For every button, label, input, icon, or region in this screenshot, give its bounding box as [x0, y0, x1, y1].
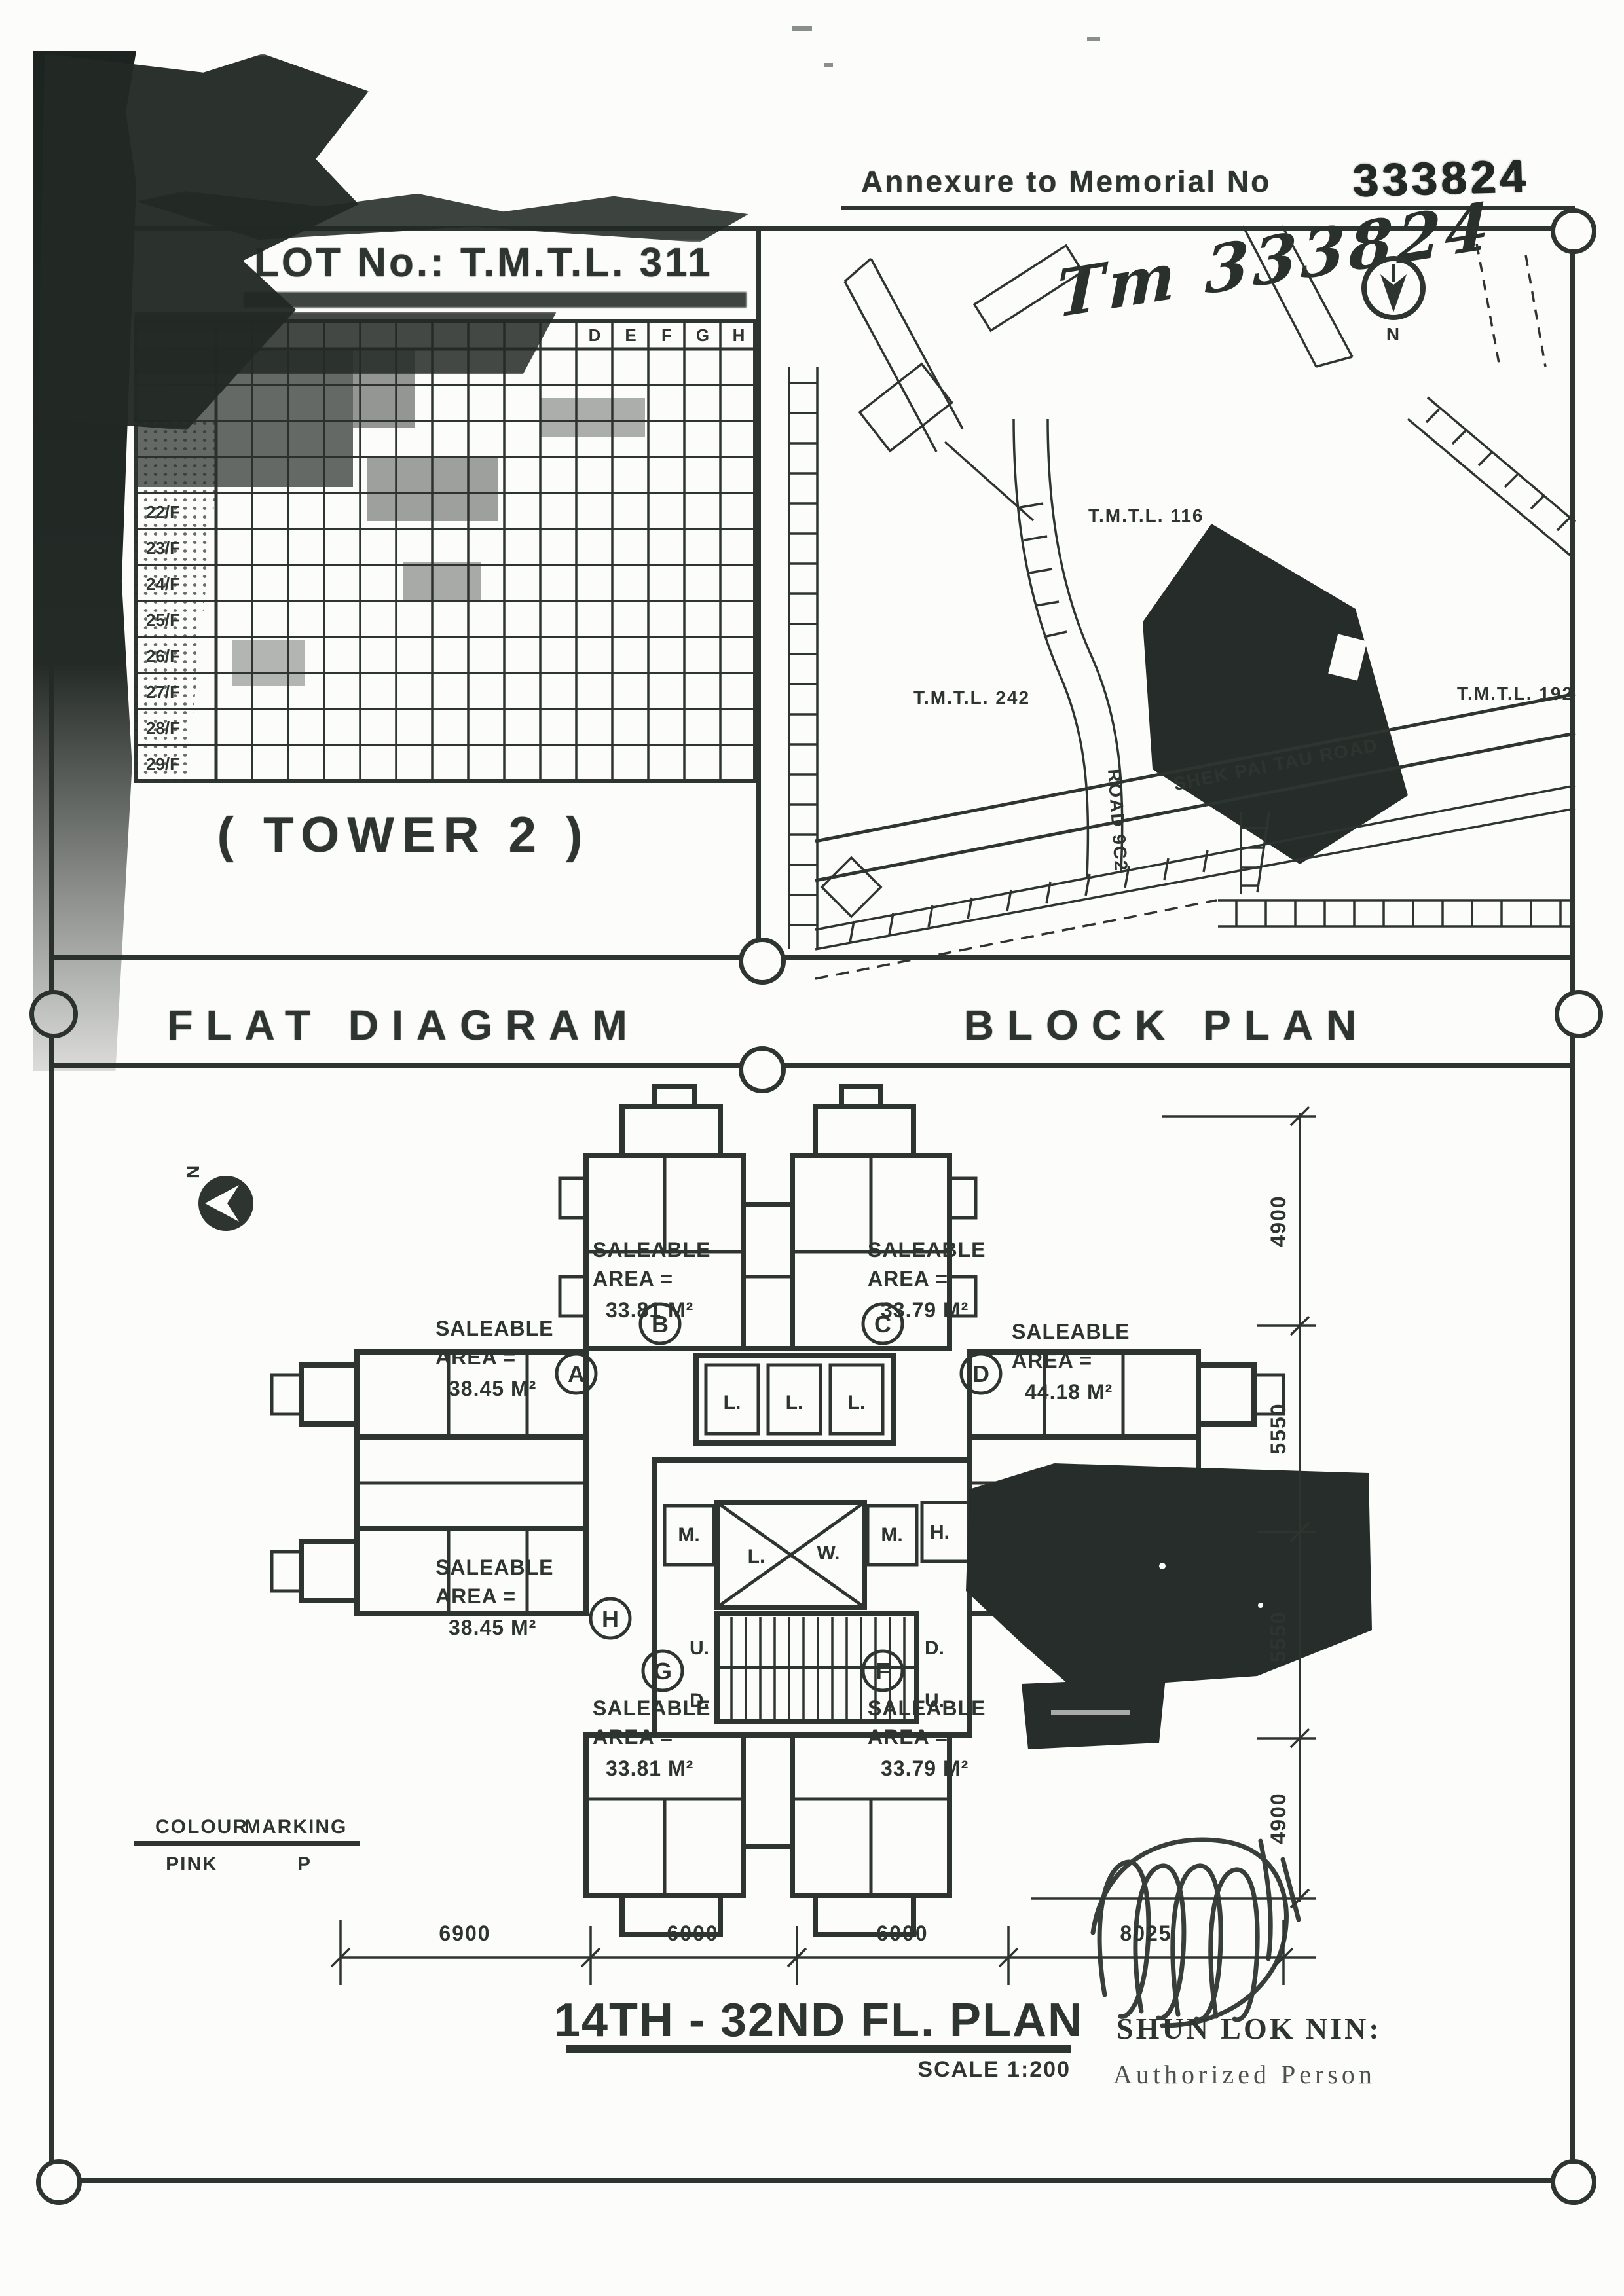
saleable-line: 38.45 M²	[449, 1377, 536, 1400]
legend-p-value: P	[297, 1853, 312, 1875]
saleable-line: SALEABLE	[868, 1696, 986, 1720]
lot-label-192: T.M.T.L. 192	[1457, 683, 1574, 704]
plan-title-block: 14TH - 32ND FL. PLAN SCALE 1:200	[554, 1994, 1083, 2082]
lot-label-242: T.M.T.L. 242	[913, 687, 1030, 708]
meter-room-label: M.	[881, 1524, 902, 1546]
dim-label: 6000	[876, 1922, 928, 1945]
dim-label: 5550	[1266, 1402, 1290, 1454]
saleable-line: 38.45 M²	[449, 1616, 536, 1639]
dim-label: 6000	[667, 1922, 718, 1945]
core: L. L. L. L. W. M. M. H.	[586, 1349, 998, 1735]
north-label: N	[1386, 324, 1401, 344]
saleable-line: AREA =	[435, 1345, 516, 1369]
caption-block-plan: BLOCK PLAN	[758, 982, 1575, 1068]
road-9c2-label: ROAD 9C2	[1104, 768, 1132, 872]
scan-artifact-grid-header	[134, 312, 557, 374]
flat-letter-d: D	[972, 1360, 989, 1387]
road-9c2	[1014, 419, 1122, 877]
subject-lot-311	[1143, 524, 1408, 864]
saleable-area-flat-a: SALEABLE AREA = 38.45 M²	[435, 1317, 553, 1400]
saleable-area-flat-c: SALEABLE AREA = 33.79 M²	[868, 1238, 986, 1322]
dim-label: 4900	[1266, 1195, 1290, 1247]
lot-label-116: T.M.T.L. 116	[1088, 505, 1204, 526]
legend-pink-value: PINK	[166, 1853, 218, 1875]
saleable-line: 33.81 M²	[606, 1757, 693, 1780]
hose-room-label: H.	[930, 1522, 950, 1543]
column-header: D	[589, 325, 601, 345]
saleable-line: 33.79 M²	[881, 1298, 969, 1322]
saleable-line: 44.18 M²	[1025, 1380, 1113, 1404]
saleable-line: AREA =	[435, 1584, 516, 1608]
saleable-line: SALEABLE	[435, 1317, 553, 1340]
flat-diagram-drawing: N	[49, 1068, 1575, 2183]
column-header: H	[733, 325, 745, 345]
stair-down-label: D.	[925, 1637, 944, 1659]
flat-diagram-north-arrow: N	[183, 1164, 253, 1231]
saleable-area-flat-g: SALEABLE AREA = 33.81 M²	[593, 1696, 710, 1780]
tower-label: ( TOWER 2 )	[49, 807, 758, 864]
saleable-line: SALEABLE	[435, 1556, 553, 1579]
map-buildings	[845, 226, 1545, 520]
plan-title: 14TH - 32ND FL. PLAN	[554, 1994, 1083, 2047]
dim-label: 5550	[1266, 1611, 1290, 1662]
lightwell-l-label: L.	[748, 1546, 766, 1567]
flat-letter-g: G	[654, 1658, 672, 1685]
lightwell-w-label: W.	[817, 1542, 840, 1564]
lift-label: L.	[724, 1392, 741, 1413]
map-hatched-band	[1408, 397, 1575, 556]
north-label: N	[183, 1164, 203, 1178]
authorized-person-name: SHUN LOK NIN:	[1116, 2012, 1382, 2045]
legend-colour-header: COLOUR	[155, 1816, 248, 1838]
saleable-line: SALEABLE	[593, 1696, 710, 1720]
flat-letter-h: H	[602, 1605, 619, 1632]
saleable-line: AREA =	[593, 1725, 673, 1749]
lift-label: L.	[786, 1392, 803, 1413]
saleable-line: AREA =	[868, 1725, 948, 1749]
lot-title-underline	[244, 292, 747, 308]
caption-flat-diagram: FLAT DIAGRAM	[49, 982, 758, 1068]
scanned-deed-plan-page: Annexure to Memorial No 333824 Tm 333824…	[0, 0, 1624, 2296]
saleable-line: 33.81 M²	[606, 1298, 693, 1322]
saleable-area-flat-b: SALEABLE AREA = 33.81 M²	[593, 1238, 710, 1322]
saleable-line: SALEABLE	[1012, 1320, 1130, 1343]
plan-scale: SCALE 1:200	[917, 2057, 1071, 2082]
meter-room-label: M.	[678, 1524, 699, 1546]
dim-label: 6900	[439, 1922, 490, 1945]
dimension-bottom: 6900 6000 6000 8025	[331, 1920, 1316, 1985]
saleable-line: AREA =	[593, 1267, 673, 1290]
band-line-top	[49, 955, 1575, 960]
block-plan-drawing: N	[758, 226, 1575, 955]
saleable-area-flat-f: SALEABLE AREA = 33.79 M²	[868, 1696, 986, 1780]
legend-marking-header: MARKING	[244, 1816, 347, 1838]
lot-number-title: LOT No.: T.M.T.L. 311	[254, 240, 713, 286]
stair-up-label: U.	[690, 1637, 709, 1659]
column-header: E	[625, 325, 636, 345]
block-plan-north-arrow: N	[1364, 259, 1423, 344]
scan-noise	[792, 26, 812, 31]
column-header: F	[661, 325, 672, 345]
column-header: G	[696, 325, 709, 345]
map-ladder-strip	[789, 367, 817, 949]
saleable-area-flat-d: SALEABLE AREA = 44.18 M²	[1012, 1320, 1130, 1404]
scan-artifact-flat-e-blob	[966, 1463, 1372, 1749]
flat-letter-circles: A B C D F G H	[557, 1304, 1001, 1690]
saleable-line: AREA =	[868, 1267, 948, 1290]
saleable-line: 33.79 M²	[881, 1757, 969, 1780]
flat-letter-a: A	[568, 1360, 585, 1387]
flat-table-grid: D E F G H 22/F 23/F 24/F 25/F 26/F 27/F …	[134, 319, 756, 782]
annexure-label: Annexure to Memorial No	[861, 164, 1271, 199]
saleable-line: SALEABLE	[593, 1238, 710, 1262]
saleable-area-flat-h: SALEABLE AREA = 38.45 M²	[435, 1556, 553, 1639]
scan-noise	[824, 63, 833, 67]
saleable-line: SALEABLE	[868, 1238, 986, 1262]
scan-noise	[1087, 37, 1100, 41]
dim-label: 4900	[1266, 1792, 1290, 1844]
lift-label: L.	[848, 1392, 866, 1413]
colour-marking-legend: COLOUR MARKING PINK P	[134, 1816, 360, 1875]
flat-letter-f: F	[876, 1658, 890, 1685]
saleable-line: AREA =	[1012, 1349, 1092, 1372]
authorized-person-role: Authorized Person	[1113, 2060, 1376, 2089]
